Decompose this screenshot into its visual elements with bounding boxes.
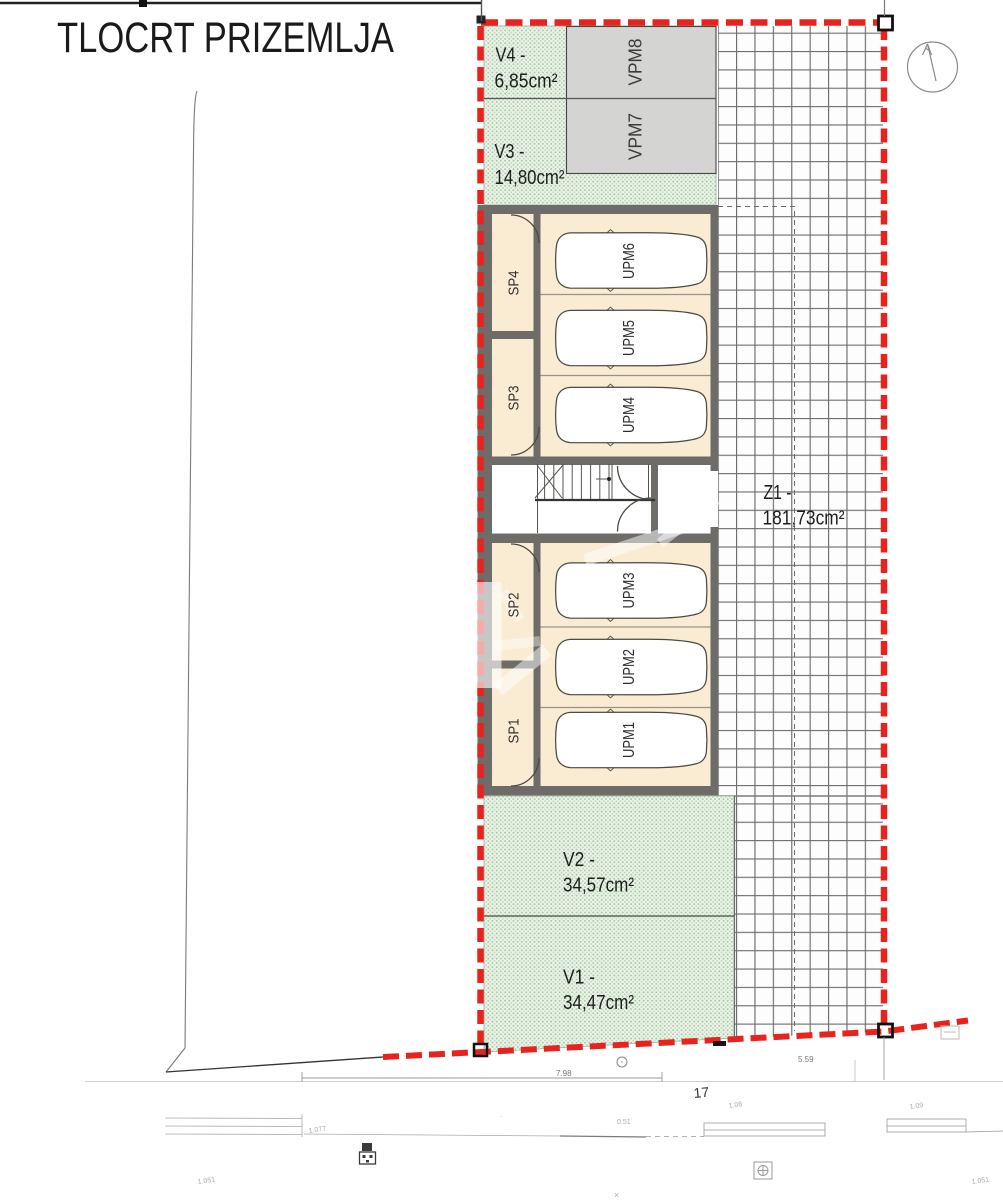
svg-text:0.51: 0.51 [617,1119,631,1126]
svg-text:5.59: 5.59 [798,1055,814,1064]
svg-text:SP4: SP4 [506,271,523,296]
svg-text:VPM7: VPM7 [626,113,646,160]
svg-text:UPM1: UPM1 [621,722,638,758]
svg-text:34,57cm²: 34,57cm² [563,875,634,897]
svg-text:VPM8: VPM8 [626,39,646,86]
svg-text:181,73cm²: 181,73cm² [763,508,845,530]
svg-text:UPM4: UPM4 [621,397,638,433]
svg-text:V4 -: V4 - [496,45,526,67]
svg-text:SP3: SP3 [506,386,523,411]
svg-text:14,80cm²: 14,80cm² [495,167,565,189]
svg-text:UPM2: UPM2 [621,649,638,685]
svg-text:Z1 -: Z1 - [764,482,792,504]
svg-text:TLOCRT PRIZEMLJA: TLOCRT PRIZEMLJA [57,14,394,62]
svg-text:V2 -: V2 - [563,849,595,871]
svg-text:UPM5: UPM5 [621,320,638,356]
svg-text:SP1: SP1 [506,719,523,744]
svg-text:34,47cm²: 34,47cm² [563,992,634,1014]
svg-text:6,85cm²: 6,85cm² [495,71,558,93]
svg-text:7.98: 7.98 [556,1069,572,1078]
svg-text:UPM3: UPM3 [621,572,638,608]
svg-text:UPM6: UPM6 [621,243,638,279]
svg-text:V3 -: V3 - [495,141,525,163]
svg-text:17: 17 [693,1084,710,1101]
svg-text:SP2: SP2 [506,593,523,618]
svg-text:V1 -: V1 - [563,967,595,989]
svg-text:×: × [614,1190,619,1200]
